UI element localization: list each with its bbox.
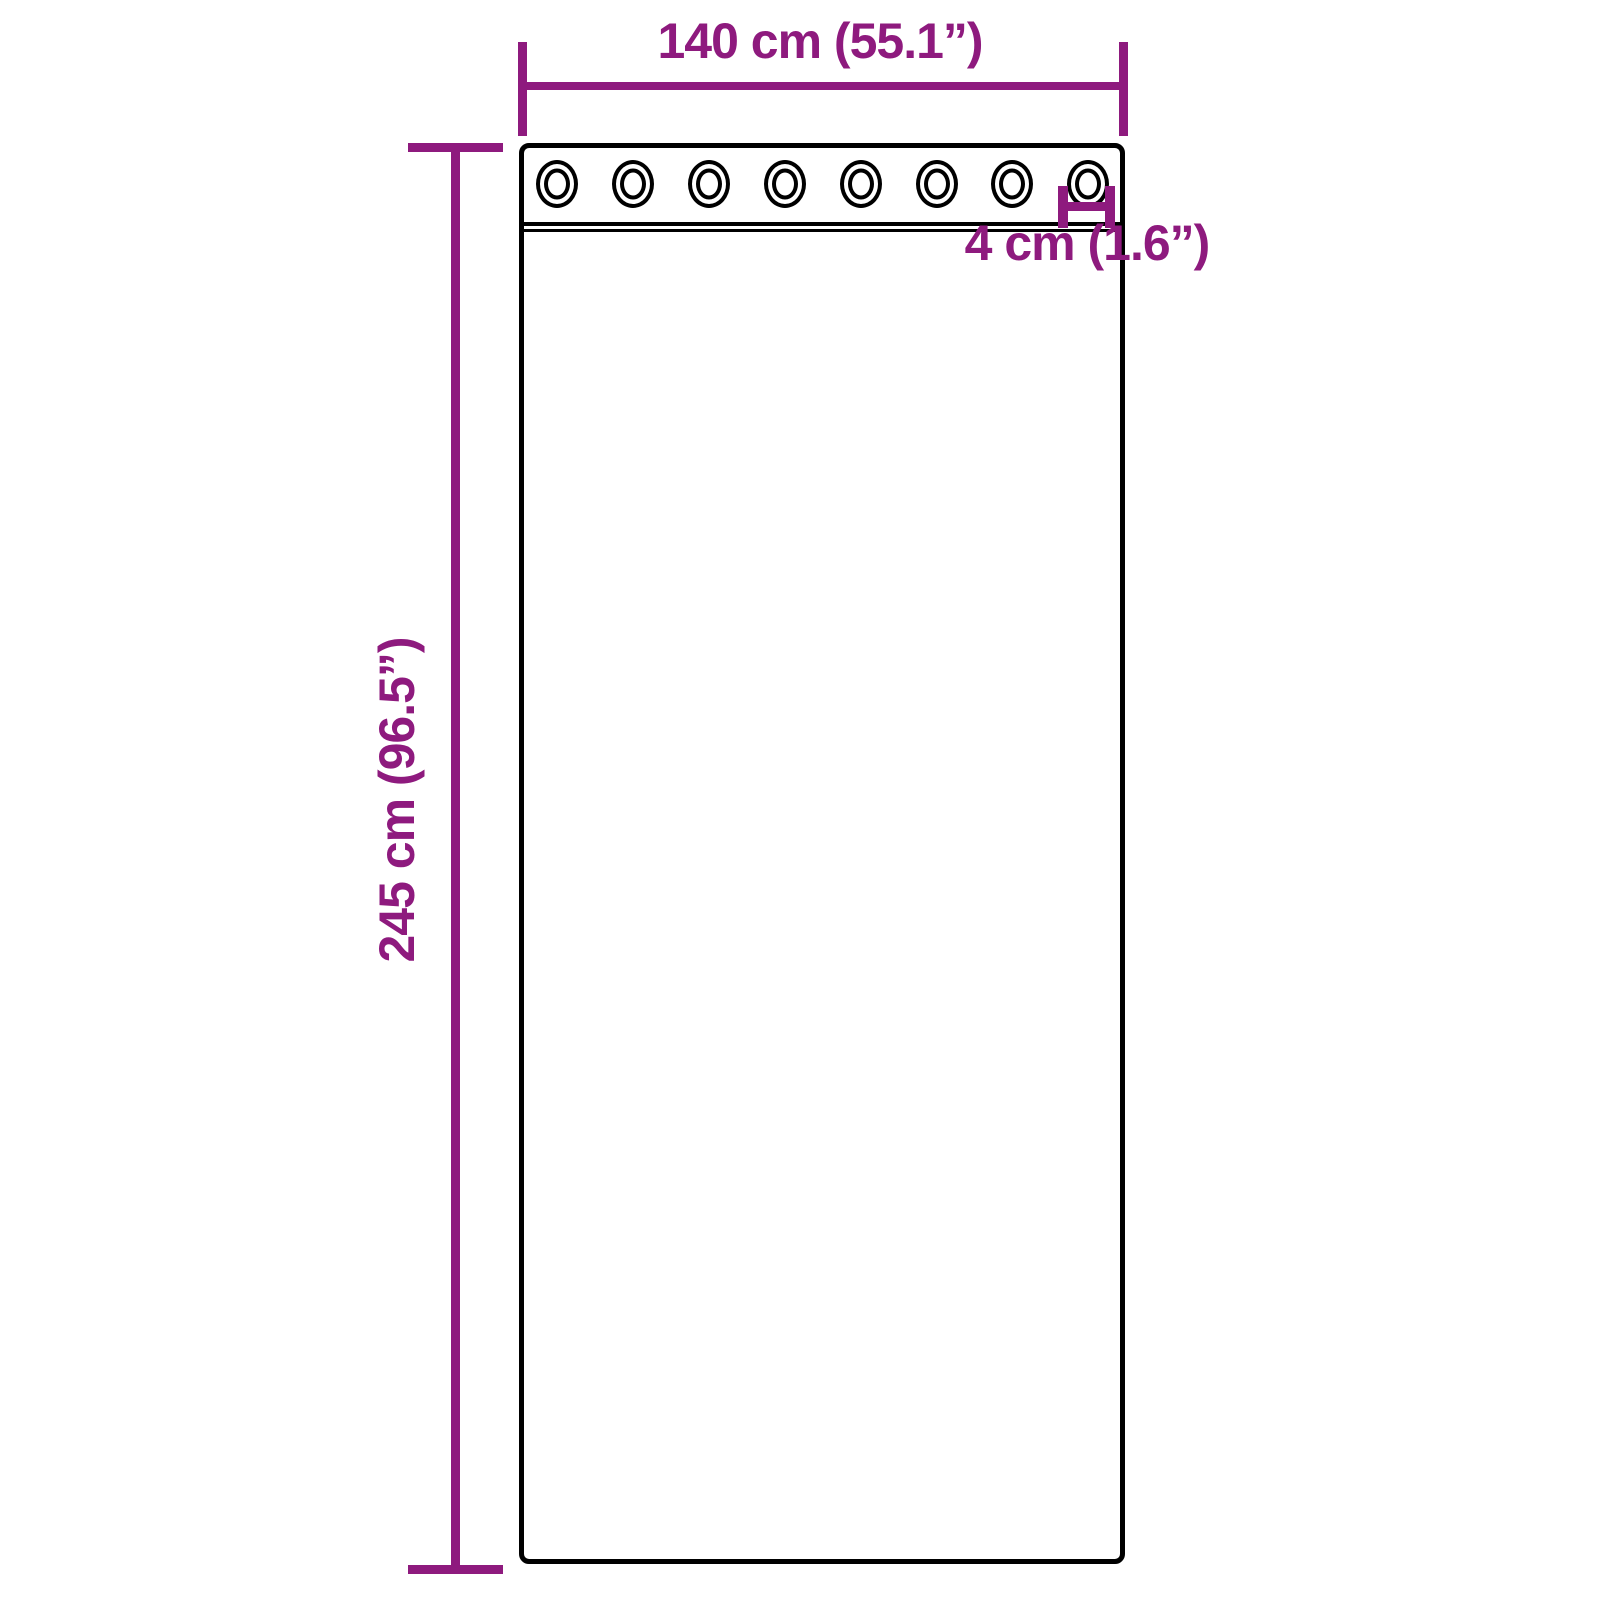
grommet-inner-ring <box>696 169 722 200</box>
grommet-inner-ring <box>544 169 570 200</box>
height-dimension-line <box>451 143 460 1574</box>
grommet-inner-ring <box>924 169 950 200</box>
grommet-ring <box>612 160 654 208</box>
curtain-dimension-diagram: 140 cm (55.1”) 245 cm (96.5”) 4 cm (1.6”… <box>0 0 1600 1600</box>
grommet-ring <box>840 160 882 208</box>
grommet-inner-ring <box>848 169 874 200</box>
grommet-inner-ring <box>772 169 798 200</box>
grommet-dimension-label: 4 cm (1.6”) <box>887 216 1287 270</box>
grommet-ring <box>536 160 578 208</box>
grommet-inner-ring <box>620 169 646 200</box>
grommet-ring <box>1067 160 1109 208</box>
grommet-ring <box>764 160 806 208</box>
width-dimension-label: 140 cm (55.1”) <box>415 14 1225 68</box>
grommet-ring <box>688 160 730 208</box>
width-dimension-line <box>518 82 1128 90</box>
grommet-inner-ring <box>999 169 1025 200</box>
curtain-panel-outline <box>519 143 1125 1564</box>
height-dimension-cap-top <box>408 143 503 152</box>
grommet-dimension-bar <box>1058 202 1115 211</box>
grommet-ring <box>916 160 958 208</box>
height-dimension-label: 245 cm (96.5”) <box>370 637 424 962</box>
height-dimension-cap-bottom <box>408 1565 503 1574</box>
grommet-inner-ring <box>1075 169 1101 200</box>
